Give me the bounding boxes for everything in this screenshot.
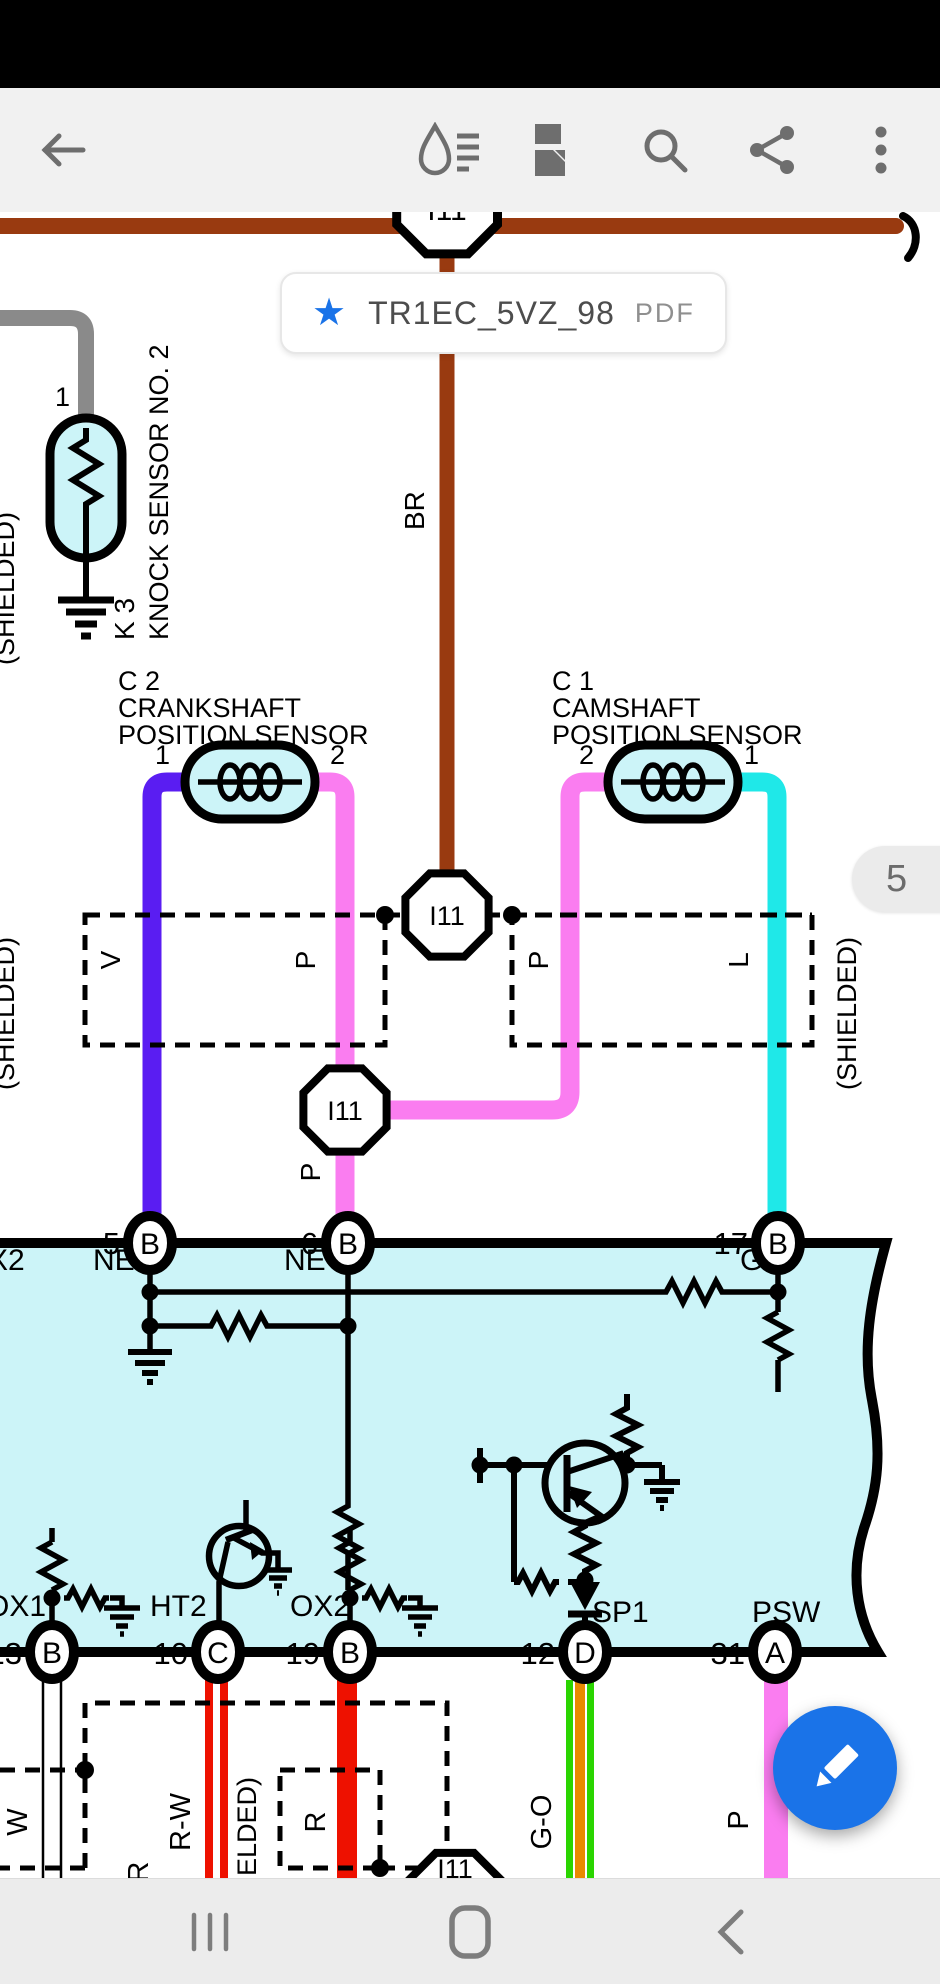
wire-end-arc (903, 216, 916, 258)
connector-i11-pink: I11 (303, 1068, 386, 1151)
junction-dot (503, 906, 521, 924)
junction-dot (76, 1761, 94, 1779)
wire-green-orange-go (566, 1680, 594, 1878)
knock-name-label: KNOCK SENSOR NO. 2 (144, 344, 174, 640)
ecu-label-ht2: HT2 (150, 1590, 207, 1623)
junction-dot (371, 1859, 389, 1877)
wiring-diagram: 1 K 3 KNOCK SENSOR NO. 2 (SHIELDED) C 2 … (0, 212, 940, 1878)
wire-label-r: R (300, 1812, 332, 1833)
wire-label-p-left: P (290, 951, 321, 970)
wire-violet-v (152, 782, 192, 1222)
navigation-bar (0, 1878, 940, 1984)
pencil-icon (806, 1739, 864, 1797)
cam-sensor-title: C 1 CAMSHAFT POSITION SENSOR (552, 666, 803, 750)
share-icon[interactable] (738, 115, 808, 185)
recents-icon[interactable] (170, 1892, 250, 1972)
ecu-label-ox1: OX1 (0, 1590, 46, 1623)
wire-label-v: V (95, 950, 126, 969)
shield-label-mid-left: (SHIELDED) (0, 937, 20, 1090)
svg-text:B: B (140, 1228, 160, 1261)
knock-pin-label: 1 (55, 382, 70, 412)
svg-text:C 2: C 2 (118, 666, 160, 696)
svg-text:B: B (768, 1228, 788, 1261)
svg-text:10: 10 (154, 1636, 188, 1671)
svg-text:I11: I11 (427, 212, 466, 227)
wire-label-p-right: P (523, 951, 554, 970)
crank-sensor-symbol (185, 745, 315, 819)
page-indicator[interactable]: 5 (852, 846, 940, 912)
svg-text:5: 5 (103, 1226, 120, 1261)
page-layout-icon[interactable] (522, 115, 592, 185)
svg-text:CRANKSHAFT: CRANKSHAFT (118, 693, 301, 723)
document-chip[interactable]: ★ TR1EC_5VZ_98 PDF (280, 272, 727, 354)
pdf-badge: PDF (635, 298, 695, 329)
wire-red-r (337, 1680, 357, 1878)
shield-label-right: (SHIELDED) (832, 937, 862, 1090)
svg-text:C: C (207, 1637, 229, 1670)
connector-i11-mid: I11 (405, 873, 488, 956)
wire-label-rw: R-W (165, 1792, 197, 1851)
svg-text:B: B (338, 1228, 358, 1261)
back-arrow-icon[interactable] (28, 115, 98, 185)
edit-fab[interactable] (773, 1706, 897, 1830)
knock-code-label: K 3 (109, 598, 140, 640)
ecu-label-ox2: OX2 (290, 1590, 350, 1623)
svg-text:D: D (574, 1637, 596, 1670)
svg-text:B: B (340, 1637, 360, 1670)
pdf-viewer-app: { "status_bar": { "background": "#000000… (0, 0, 940, 1984)
svg-text:12: 12 (521, 1636, 555, 1671)
svg-text:I11: I11 (327, 1096, 363, 1126)
ecu-label-sp1: SP1 (592, 1596, 649, 1629)
cam-pin-left: 2 (579, 740, 594, 770)
svg-text:C 1: C 1 (552, 666, 594, 696)
wire-gray-knock (0, 318, 86, 416)
svg-text:17: 17 (714, 1226, 748, 1261)
search-icon[interactable] (630, 115, 700, 185)
wire-white-w (43, 1680, 61, 1878)
svg-text:B: B (42, 1637, 62, 1670)
connector-i11-top: I11 (397, 212, 498, 254)
svg-text:6: 6 (301, 1226, 318, 1261)
svg-text:I11: I11 (437, 1854, 473, 1878)
junction-dot (376, 906, 394, 924)
wire-label-br: BR (399, 491, 430, 530)
status-bar (0, 0, 940, 88)
annotate-icon[interactable] (414, 115, 484, 185)
svg-text:31: 31 (711, 1636, 745, 1671)
cam-pin-right: 1 (744, 740, 759, 770)
wire-label-go: G-O (526, 1795, 558, 1850)
svg-text:CAMSHAFT: CAMSHAFT (552, 693, 701, 723)
shield-label-bottom: (SHIELDED) (232, 1777, 262, 1878)
svg-text:13: 13 (0, 1636, 22, 1671)
back-icon[interactable] (690, 1892, 770, 1972)
document-title: TR1EC_5VZ_98 (368, 295, 615, 332)
shield-label-upper-left: (SHIELDED) (0, 512, 20, 665)
cam-sensor-symbol (608, 745, 738, 819)
crank-pin-right: 2 (330, 740, 345, 770)
home-icon[interactable] (430, 1892, 510, 1972)
wire-label-p-bottom: P (723, 1810, 755, 1829)
star-icon: ★ (312, 294, 346, 332)
wire-label-or-clipped: OR (123, 1862, 155, 1879)
wire-red-rw (205, 1680, 228, 1878)
svg-text:19: 19 (286, 1636, 320, 1671)
wire-label-p-mid: P (295, 1163, 326, 1182)
more-options-icon[interactable] (846, 115, 916, 185)
wire-pink-crank (308, 782, 345, 1222)
connector-i11-bottom: I11 (409, 1853, 502, 1878)
crank-pin-left: 1 (155, 740, 170, 770)
page-number: 5 (886, 858, 907, 901)
svg-text:A: A (765, 1637, 785, 1670)
pdf-page-content[interactable]: 1 K 3 KNOCK SENSOR NO. 2 (SHIELDED) C 2 … (0, 212, 940, 1878)
wire-label-w: W (2, 1808, 34, 1836)
app-toolbar (0, 88, 940, 212)
ecu-block (0, 1243, 886, 1652)
svg-text:I11: I11 (429, 901, 465, 931)
wire-label-l: L (723, 952, 754, 968)
wire-cyan-l (736, 782, 777, 1222)
ecu-clipped-label: X2 (0, 1244, 25, 1277)
crank-sensor-title: C 2 CRANKSHAFT POSITION SENSOR (118, 666, 369, 750)
